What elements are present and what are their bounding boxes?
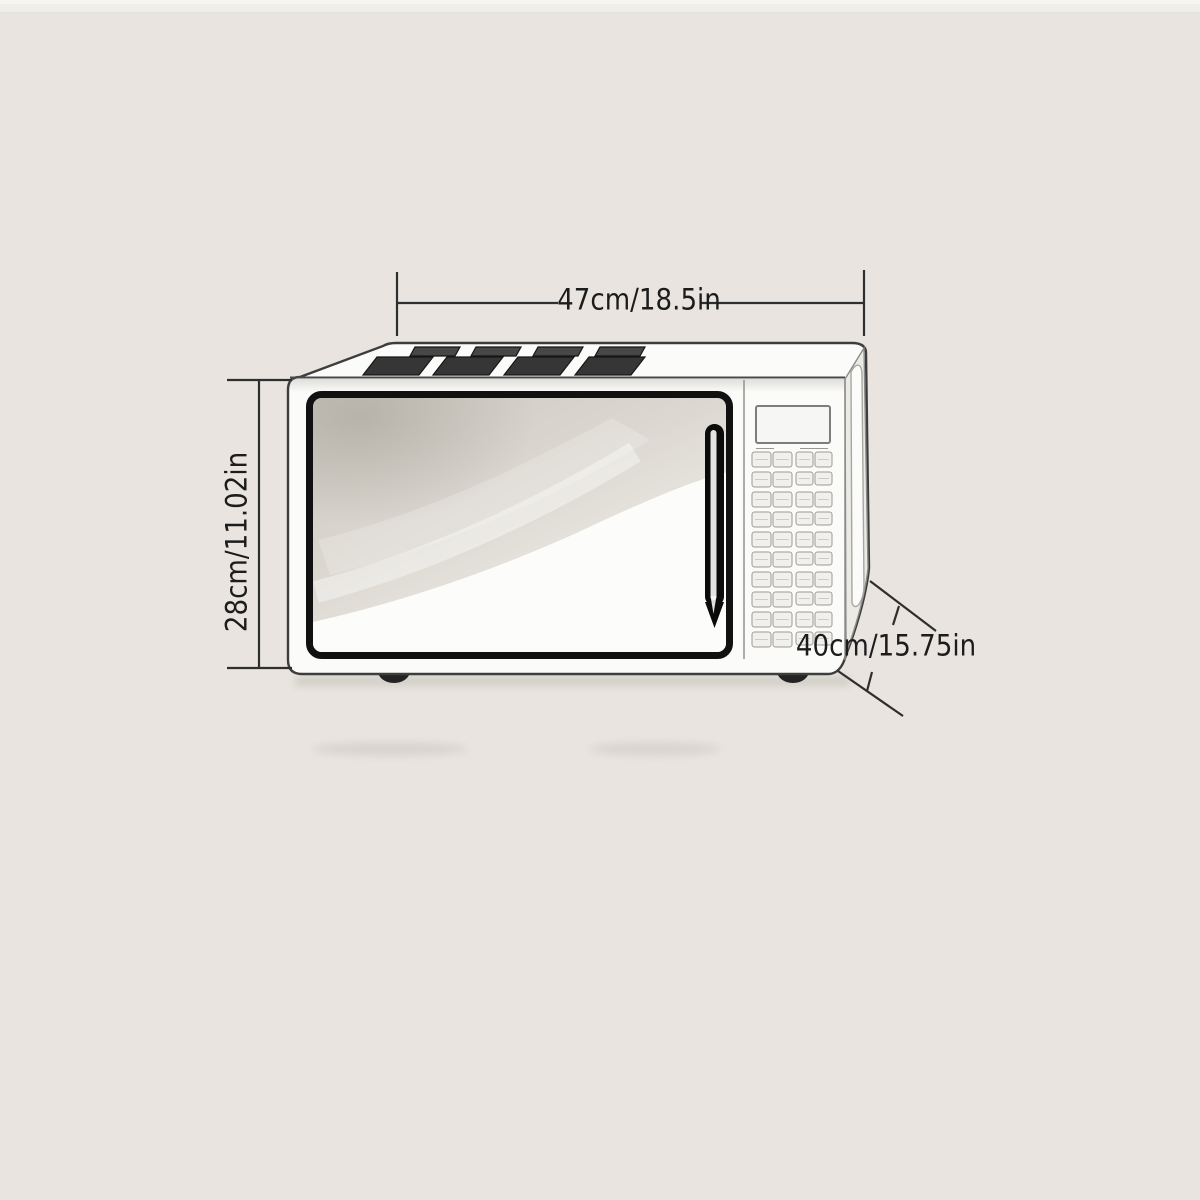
floor-shadows	[295, 676, 850, 756]
depth-tick-upper	[893, 606, 899, 625]
width-dimension-label: 47cm/18.5in	[557, 286, 721, 315]
depth-dimension-label: 40cm/15.75in	[796, 632, 976, 661]
product-dimension-diagram: 47cm/18.5in 28cm/11.02in 40cm/15.75in	[0, 0, 1200, 1200]
side-panel-highlight	[851, 365, 864, 606]
door-handle	[705, 424, 724, 628]
control-panel	[744, 380, 832, 659]
height-dimension-label: 28cm/11.02in	[223, 452, 252, 632]
microwave-illustration	[0, 0, 1200, 1200]
depth-tick-lower	[867, 672, 872, 691]
door-glass	[313, 398, 728, 660]
front-top-shade	[290, 379, 845, 392]
display-screen	[756, 406, 830, 443]
dimension-line-depth-upper	[870, 581, 936, 631]
door	[310, 395, 730, 661]
